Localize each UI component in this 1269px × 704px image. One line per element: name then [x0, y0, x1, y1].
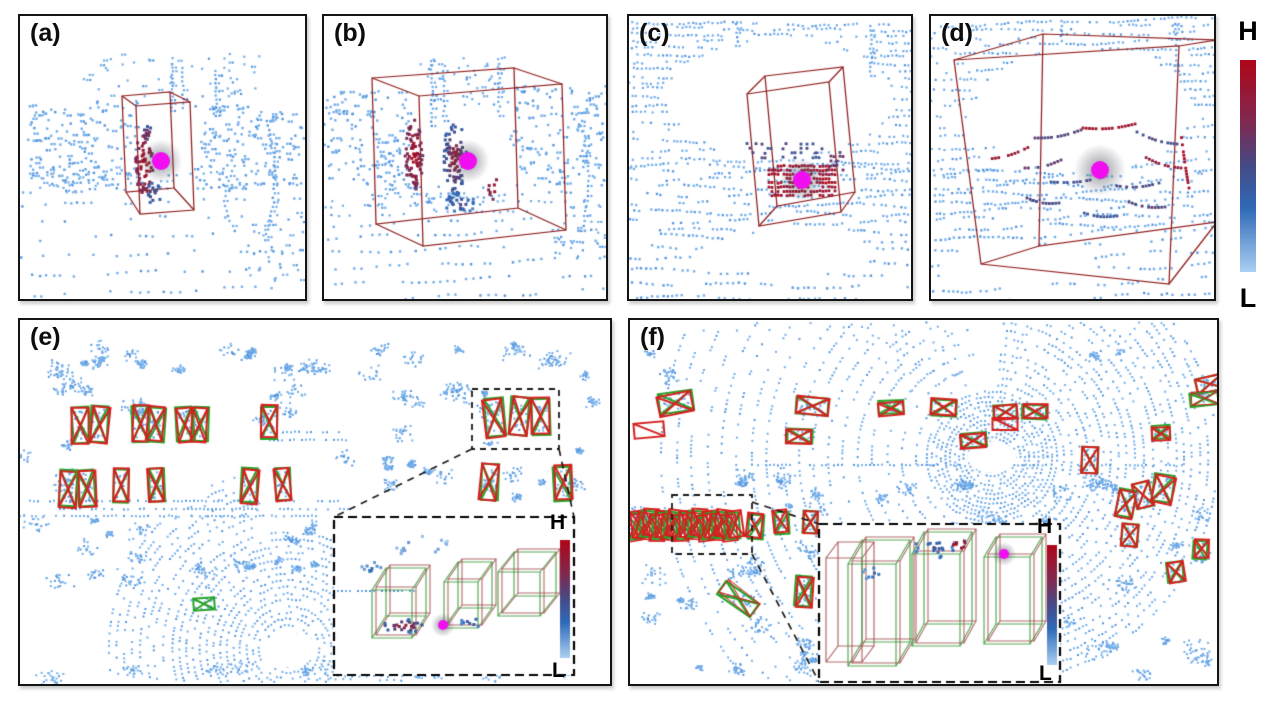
colorbar-gradient	[1240, 60, 1256, 272]
colorbar-high-label: H	[1230, 16, 1266, 47]
panel-c-pointcloud-canvas	[629, 16, 911, 299]
panel-d-pointcloud-canvas	[931, 16, 1214, 299]
panel-f: (f) H L	[628, 318, 1219, 686]
main-colorbar: H L	[1230, 16, 1266, 314]
panel-a-pointcloud-canvas	[20, 16, 305, 299]
panel-b-pointcloud-canvas	[324, 16, 606, 299]
panel-b: (b)	[322, 14, 608, 301]
panel-e-bev-canvas	[20, 320, 610, 684]
panel-c: (c)	[627, 14, 913, 301]
panel-e: (e) H L	[18, 318, 612, 686]
panel-f-bev-canvas	[630, 320, 1217, 684]
panel-d: (d)	[929, 14, 1216, 301]
figure-root: (a) (b) (c) (d) H L (e) H L (f) H L	[0, 0, 1269, 704]
panel-a: (a)	[18, 14, 307, 301]
colorbar-low-label: L	[1230, 283, 1266, 314]
